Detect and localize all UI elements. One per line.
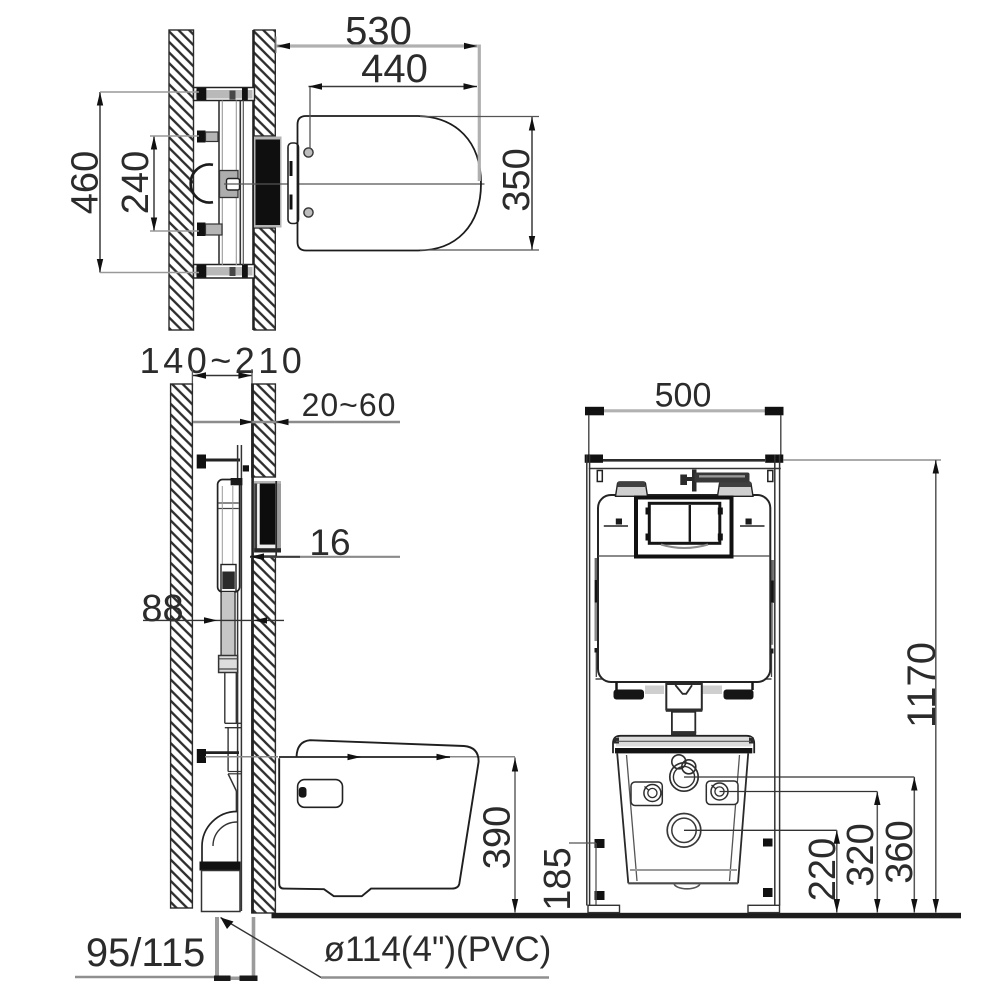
svg-text:88: 88 <box>141 588 183 630</box>
svg-text:185: 185 <box>537 847 579 910</box>
svg-text:220: 220 <box>802 838 844 901</box>
svg-text:320: 320 <box>840 823 882 886</box>
svg-text:500: 500 <box>655 377 712 415</box>
svg-text:1170: 1170 <box>900 642 944 728</box>
svg-text:390: 390 <box>477 806 519 869</box>
svg-text:240: 240 <box>115 151 157 214</box>
svg-text:95/115: 95/115 <box>86 931 205 975</box>
svg-text:440: 440 <box>361 47 428 91</box>
svg-text:20~60: 20~60 <box>302 387 397 423</box>
svg-text:ø114(4")(PVC): ø114(4")(PVC) <box>324 930 552 969</box>
